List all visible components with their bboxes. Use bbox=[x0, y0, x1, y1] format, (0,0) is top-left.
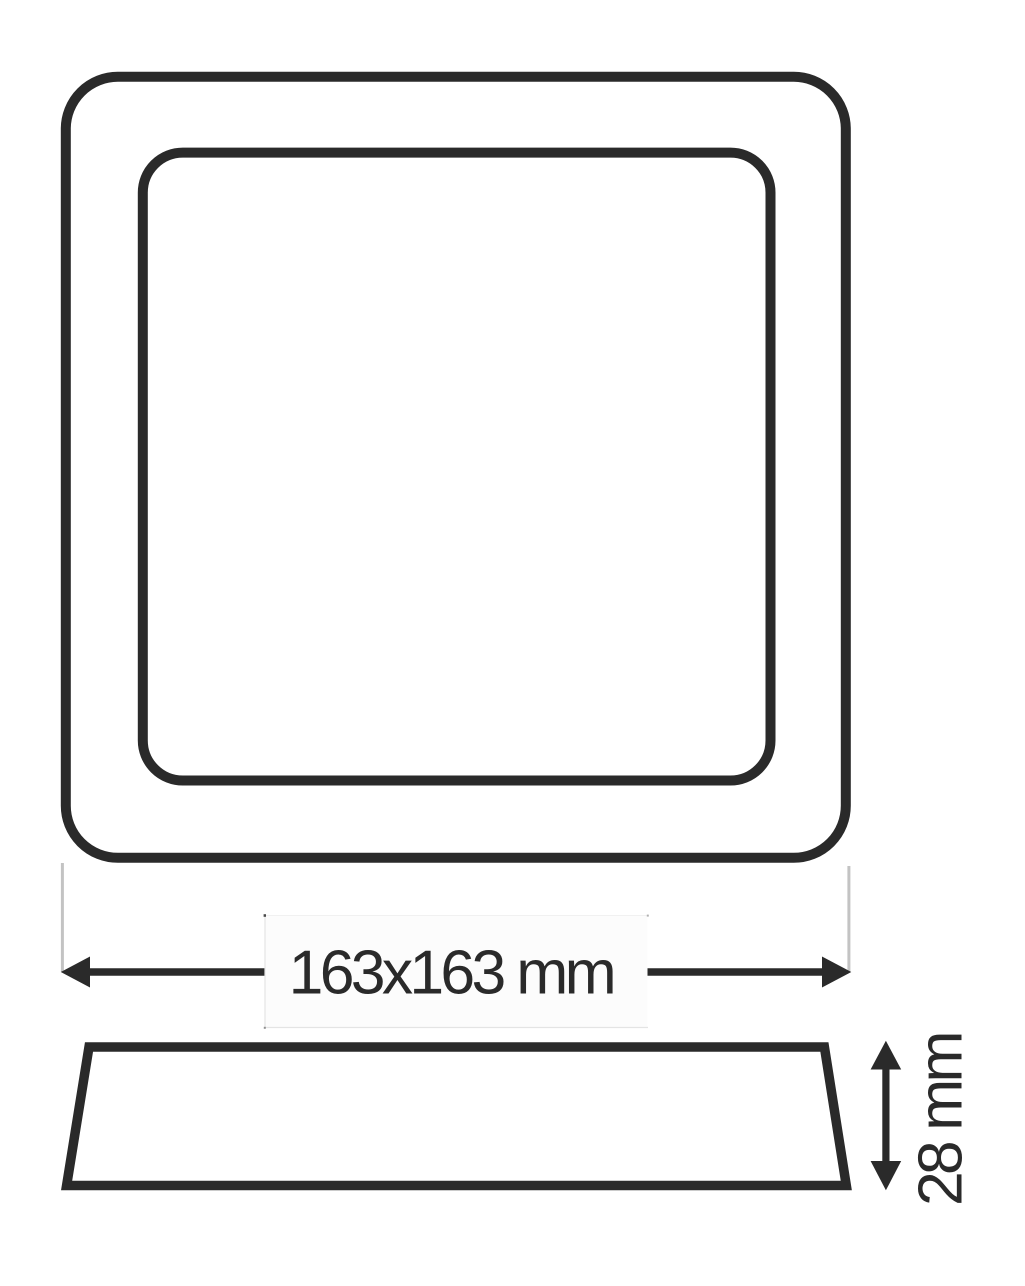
svg-text:163x163 mm: 163x163 mm bbox=[289, 938, 613, 1008]
svg-text:28 mm: 28 mm bbox=[906, 1034, 976, 1206]
